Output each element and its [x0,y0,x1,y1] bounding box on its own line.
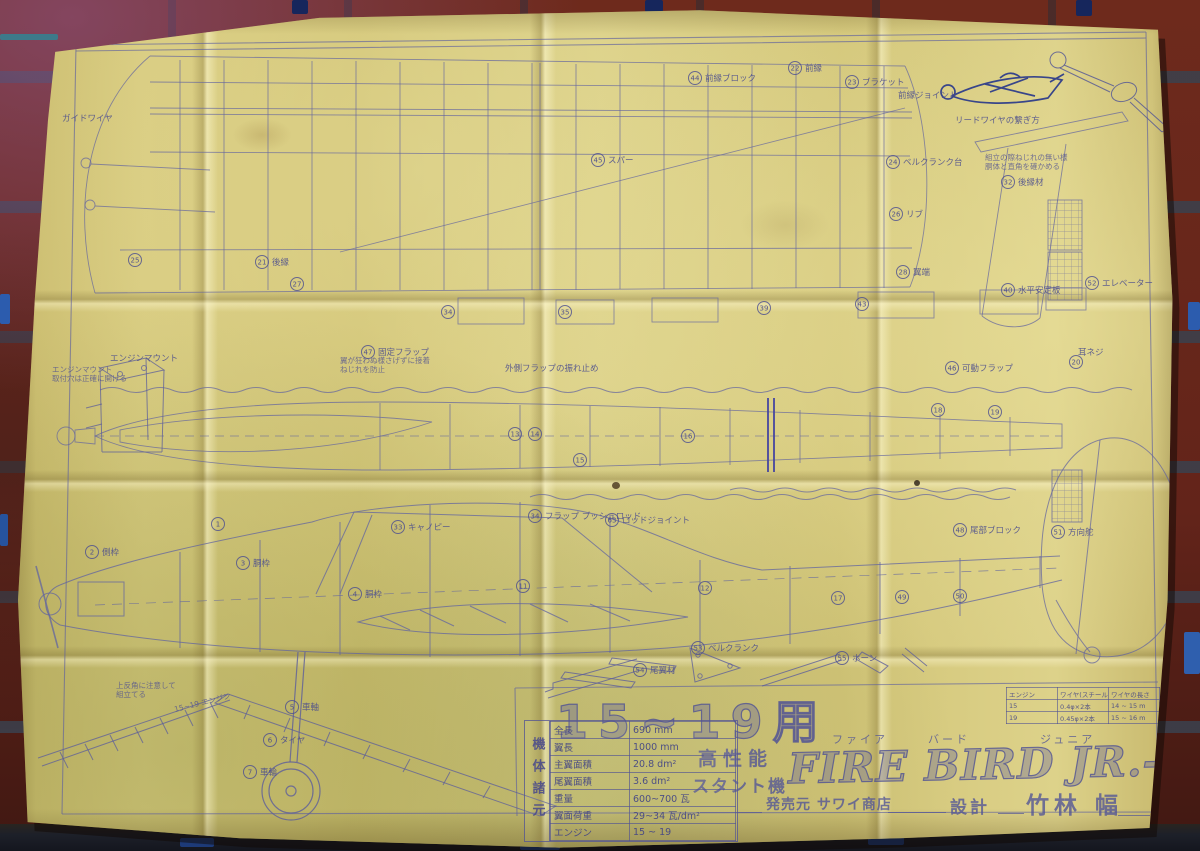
svg-text:エレベーター: エレベーター [1102,279,1153,289]
svg-text:キャノピー: キャノピー [408,523,451,533]
table-cell: 19 [1007,712,1058,724]
callout: 34 [442,306,455,319]
svg-text:20: 20 [1072,359,1081,367]
svg-text:前縁: 前縁 [805,63,823,74]
svg-text:49: 49 [898,594,907,602]
callout: 25 [129,254,142,267]
blueprint-paper: 44前縁ブロック22前縁23ブラケット前縁ジョイント47固定フラップ外側フラップ… [0,0,1200,851]
designer-name: 竹林 幅 [1026,786,1123,820]
svg-text:43: 43 [858,301,867,309]
svg-text:ガイドワイヤ: ガイドワイヤ [62,113,113,124]
svg-text:ベルクランク: ベルクランク [708,644,759,654]
wire-table: エンジンワイヤ(スチール)ワイヤの長さ150.4φ×2本14 ~ 15 m190… [1006,687,1160,724]
table-cell: 翼面荷重 [551,807,630,824]
svg-text:45: 45 [594,157,603,165]
publisher-label: 発売元 サワイ商店 [766,794,892,814]
design-label: 設計 [950,793,990,818]
callout: 外側フラップの振れ止め [505,363,599,374]
svg-text:尾翼材: 尾翼材 [650,665,676,676]
table-cell: 14 ~ 15 m [1109,700,1160,712]
svg-text:39: 39 [760,305,769,313]
callout: エンジンマウント [110,354,178,364]
svg-text:4: 4 [353,591,358,599]
callout: 55ホーン [836,652,878,665]
callout: 19 [989,406,1002,419]
callout: 21後縁 [256,256,290,269]
callout: 3胴枠 [237,557,271,570]
callout: 22前縁 [789,62,823,75]
callout: 45スパー [592,154,634,167]
callout: リードワイヤの繋ぎ方 [955,115,1040,126]
svg-text:40: 40 [1004,287,1013,295]
table-cell: 15 ~ 16 m [1109,712,1160,724]
svg-text:可動フラップ: 可動フラップ [962,363,1014,374]
callout: 24ベルクランク台 [887,156,963,169]
table-cell: 尾翼面積 [551,773,630,790]
table-cell: 全長 [551,722,630,739]
svg-text:エンジンマウント: エンジンマウント [110,354,178,364]
table-cell: 重量 [551,790,630,807]
svg-text:17: 17 [834,595,843,603]
svg-text:側枠: 側枠 [102,547,120,558]
svg-text:25: 25 [131,257,140,265]
svg-text:耳ネジ: 耳ネジ [1078,348,1104,358]
callout: 27 [291,278,304,291]
table-cell: 0.4φ×2本 [1058,700,1109,712]
blue-accent [1188,302,1200,330]
callout: 26リブ [890,208,924,221]
blue-accent [292,0,308,14]
blue-accent [1076,0,1092,16]
callout: 50 [954,590,967,603]
svg-text:13: 13 [511,431,520,439]
svg-text:34: 34 [444,309,453,317]
svg-text:52: 52 [1088,280,1097,288]
svg-text:27: 27 [293,281,302,289]
svg-text:24: 24 [889,159,898,167]
callout: 14 [529,428,542,441]
callout: 48尾部ブロック [954,524,1022,537]
callout: 35 [559,306,572,319]
spec-table-body: 全長690 mm翼長1000 mm主翼面積20.8 dm²尾翼面積3.6 dm²… [551,722,736,841]
callout: 40水平安定板 [1002,284,1062,297]
table-cell: 3.6 dm² [630,773,736,790]
table-cell: 20.8 dm² [630,756,736,773]
callout: ガイドワイヤ [62,113,113,124]
blue-accent [645,0,663,12]
teal-mortar-line [0,34,58,40]
spec-table: 機体諸元 全長690 mm翼長1000 mm主翼面積20.8 dm²尾翼面積3.… [524,720,738,842]
callout: 12 [699,582,712,595]
callout: 23ブラケット [846,76,905,89]
callout: 46可動フラップ [946,362,1014,375]
blue-accent [0,514,8,546]
svg-text:23: 23 [848,79,857,87]
callout: 54尾翼材 [634,664,677,677]
callout: 18 [932,404,945,417]
table-cell: 0.45φ×2本 [1058,712,1109,724]
callout: 51方向舵 [1052,526,1095,539]
svg-text:28: 28 [899,269,908,277]
callout: 2側枠 [86,546,120,559]
svg-text:外側フラップの振れ止め: 外側フラップの振れ止め [505,363,599,374]
svg-text:ホーン: ホーン [852,654,877,664]
svg-text:35: 35 [561,309,570,317]
annotation-note: 15~19 エンジン [173,691,231,714]
table-cell: 15 ~ 19 [630,824,736,841]
table-cell: 15 [1007,700,1058,712]
annotation-note: 翼が狂わぬ様さげずに接着ねじれを防止 [340,355,430,374]
svg-text:16: 16 [684,433,693,441]
svg-text:水平安定板: 水平安定板 [1018,285,1061,296]
callout: 44前縁ブロック [689,72,757,85]
svg-text:リブ: リブ [906,209,924,220]
table-cell: 29~34 瓦/dm² [630,807,736,824]
table-cell: エンジン [551,824,630,841]
svg-text:車軸: 車軸 [302,702,319,713]
signature-rule [998,813,1024,814]
callout: 32後縁材 [1002,176,1045,189]
callout: 15 [574,454,587,467]
svg-text:55: 55 [838,655,847,663]
svg-text:5: 5 [290,704,294,712]
callout: 53ベルクランク [692,642,760,655]
photo-scene: 44前縁ブロック22前縁23ブラケット前縁ジョイント47固定フラップ外側フラップ… [0,0,1200,851]
callout: 1 [212,518,225,531]
svg-text:22: 22 [791,65,800,73]
svg-text:前縁ジョイント: 前縁ジョイント [898,90,958,101]
svg-text:2: 2 [90,549,94,557]
table-cell: 690 mm [630,722,736,739]
svg-text:11: 11 [519,583,528,591]
svg-text:ベルクランク台: ベルクランク台 [903,157,963,168]
svg-text:リードワイヤの繋ぎ方: リードワイヤの繋ぎ方 [955,115,1040,126]
svg-text:3: 3 [241,560,245,568]
callout: 43 [856,298,869,311]
svg-text:32: 32 [1004,179,1013,187]
svg-text:後縁材: 後縁材 [1018,177,1044,188]
svg-text:後縁: 後縁 [272,257,290,268]
table-cell: 1000 mm [630,739,736,756]
svg-text:12: 12 [701,585,710,593]
annotation-note: エンジンマウント取付穴は正確に開ける [52,365,127,383]
svg-text:33: 33 [394,524,403,532]
svg-text:54: 54 [636,667,645,675]
callout: 39 [758,302,771,315]
svg-text:18: 18 [934,407,943,415]
svg-text:タイヤ: タイヤ [280,736,305,746]
svg-text:48: 48 [956,527,965,535]
table-cell: 翼長 [551,739,630,756]
table-cell: エンジン [1007,688,1058,700]
svg-text:15: 15 [576,457,585,465]
table-cell: 600~700 瓦 [630,790,736,807]
table-cell: ワイヤ(スチール) [1058,688,1109,700]
callout: 7車輪 [244,766,278,779]
annotation-note: 上反角に注意して組立てる [116,680,176,699]
svg-text:翼端: 翼端 [913,267,931,278]
svg-text:50: 50 [956,593,965,601]
callout: 16 [682,430,695,443]
callout: 11 [517,580,530,593]
spec-table-side-label: 機体諸元 [525,721,550,841]
wire-table-body: エンジンワイヤ(スチール)ワイヤの長さ150.4φ×2本14 ~ 15 m190… [1007,688,1160,724]
callout: 20 [1070,356,1083,369]
svg-text:ロッドジョイント: ロッドジョイント [622,516,690,526]
callout: 13 [509,428,522,441]
svg-text:51: 51 [1054,529,1063,537]
annotation-note: 組立の際ねじれの無い様胴体と直角を確かめる [985,152,1068,171]
svg-text:44: 44 [691,75,700,83]
svg-text:21: 21 [258,259,267,267]
callout: 6タイヤ [264,734,306,747]
svg-text:34: 34 [531,513,540,521]
signature-rule [888,812,946,813]
table-cell: 主翼面積 [551,756,630,773]
callout: 49 [896,591,909,604]
plane-name: FIRE BIRD JR.-S [788,736,1193,793]
callout: 33キャノピー [392,521,451,534]
svg-text:前縁ブロック: 前縁ブロック [705,73,756,84]
svg-text:63: 63 [608,517,617,525]
svg-text:胴枠: 胴枠 [365,589,383,600]
svg-text:46: 46 [948,365,957,373]
svg-text:尾部ブロック: 尾部ブロック [970,525,1021,536]
svg-text:7: 7 [248,769,252,777]
callout: 耳ネジ [1078,348,1104,358]
svg-text:1: 1 [216,521,220,529]
svg-text:53: 53 [694,645,703,653]
callout: 4胴枠 [349,588,383,601]
table-cell: ワイヤの長さ [1109,688,1160,700]
svg-text:方向舵: 方向舵 [1068,527,1094,538]
callout: 28翼端 [897,266,931,279]
callout: 17 [832,592,845,605]
signature-rule [1118,815,1150,816]
svg-text:26: 26 [892,211,901,219]
svg-text:車輪: 車輪 [260,767,278,778]
svg-text:14: 14 [531,431,540,439]
callout: 52エレベーター [1086,277,1154,290]
svg-text:胴枠: 胴枠 [253,558,271,569]
svg-text:スパー: スパー [608,156,634,166]
svg-text:19: 19 [991,409,1000,417]
callout: 前縁ジョイント [898,90,958,101]
blue-accent [1184,632,1200,674]
blue-accent [0,294,10,324]
callout: 5車軸 [286,701,320,714]
svg-text:6: 6 [268,737,273,745]
svg-text:ブラケット: ブラケット [862,77,905,88]
